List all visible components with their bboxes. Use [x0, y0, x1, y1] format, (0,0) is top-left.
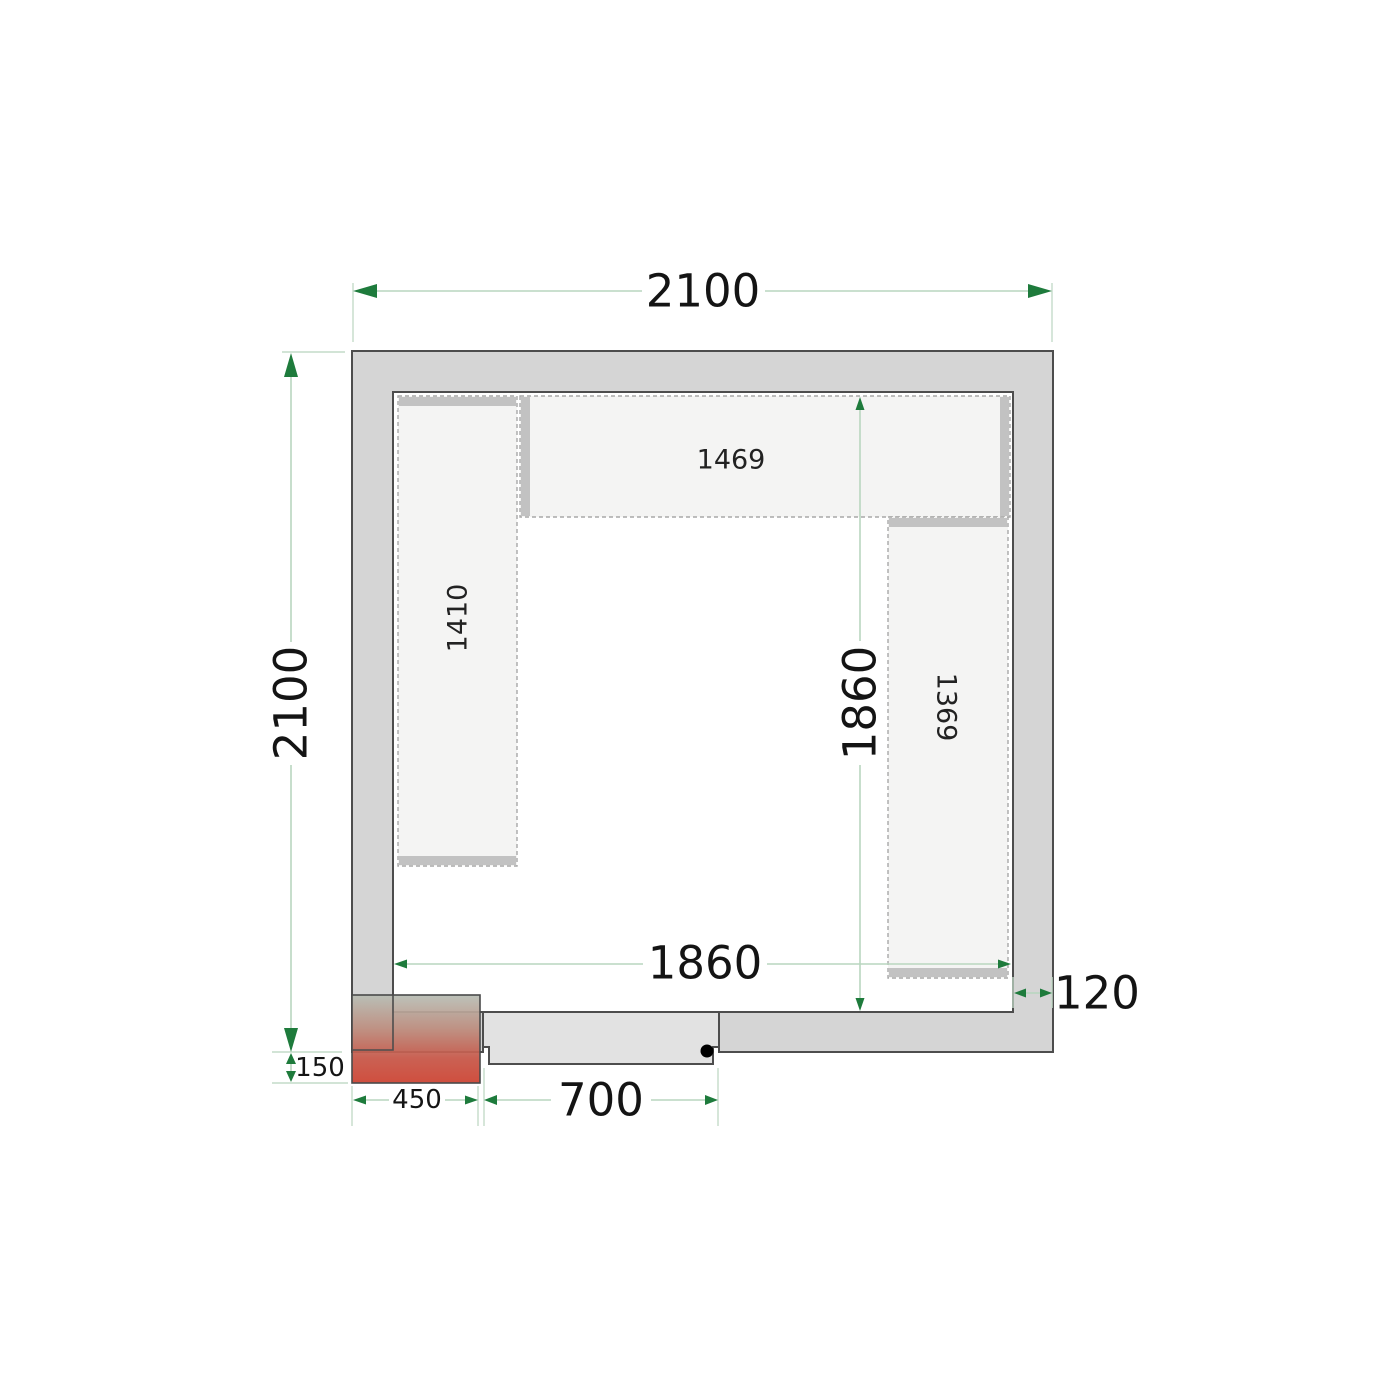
door [483, 1012, 719, 1064]
dim-outer-width-label: 2100 [646, 265, 761, 318]
dim-inner-width-label: 1860 [648, 937, 763, 990]
shelf-top-cap-right [1000, 397, 1009, 516]
dim-outer-height-arrow-bottom [284, 1028, 298, 1052]
floor-plan: 1410 1469 1369 2100 2100 150 [0, 0, 1400, 1400]
condensing-unit [352, 995, 480, 1083]
door-handle-dot [701, 1045, 714, 1058]
dim-inner-height-arrow-bottom [856, 998, 865, 1011]
dim-outer-width-arrow-right [1028, 284, 1052, 298]
condensing-unit-box [352, 995, 480, 1083]
shelf-right-cap-top [889, 518, 1007, 527]
dim-outer-height-arrow-top [284, 353, 298, 377]
dim-unit-width-arrow-left [353, 1096, 366, 1105]
door-panel [483, 1012, 719, 1064]
shelves: 1410 1469 1369 [398, 396, 1010, 978]
dim-inner-height-label: 1860 [834, 646, 887, 761]
dim-outer-height-label: 2100 [265, 646, 318, 761]
dim-unit-offset: 150 [272, 1053, 348, 1083]
shelf-right-label: 1369 [931, 673, 962, 742]
dim-outer-height: 2100 [265, 352, 346, 1052]
dim-unit-width-label: 450 [392, 1085, 442, 1115]
shelf-right [888, 517, 1008, 978]
shelf-top-cap-left [521, 397, 530, 516]
shelf-left-cap-top [399, 397, 516, 406]
dim-door-width-label: 700 [558, 1074, 644, 1127]
dim-unit-width: 450 [352, 1085, 478, 1126]
floor-plan-svg: 1410 1469 1369 2100 2100 150 [0, 0, 1400, 1400]
shelf-right-cap-bottom [889, 968, 1007, 977]
dim-door-width-arrow-left [484, 1095, 497, 1105]
shelf-left-label: 1410 [443, 584, 474, 653]
dim-outer-width-arrow-left [353, 284, 377, 298]
dim-outer-width: 2100 [353, 265, 1052, 343]
dim-door-width: 700 [484, 1068, 718, 1127]
dim-unit-offset-label: 150 [295, 1053, 345, 1083]
dim-unit-width-arrow-right [465, 1096, 478, 1105]
shelf-top-label: 1469 [697, 445, 766, 476]
dim-door-width-arrow-right [705, 1095, 718, 1105]
dim-wall-thickness-label: 120 [1054, 967, 1140, 1020]
shelf-left-cap-bottom [399, 856, 516, 865]
dim-inner-width-arrow-left [394, 960, 407, 969]
